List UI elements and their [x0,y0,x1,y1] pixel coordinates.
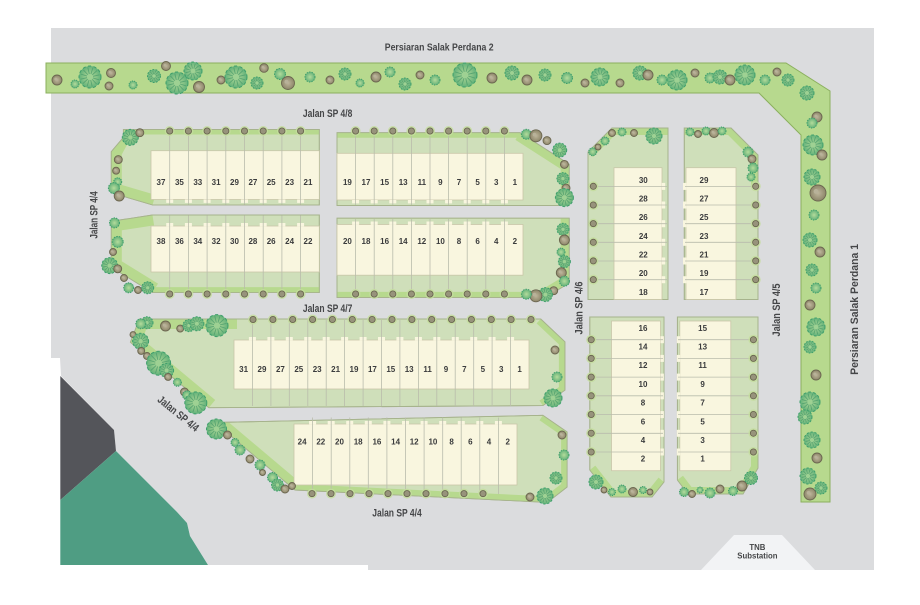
svg-text:18: 18 [354,438,363,447]
svg-text:20: 20 [335,438,344,447]
svg-text:23: 23 [313,365,322,374]
svg-text:22: 22 [304,237,313,246]
svg-text:28: 28 [248,237,257,246]
svg-text:2: 2 [505,438,510,447]
svg-text:26: 26 [639,213,648,222]
svg-text:5: 5 [700,417,705,426]
svg-text:17: 17 [700,288,709,297]
svg-text:18: 18 [639,288,648,297]
svg-text:7: 7 [457,178,462,187]
svg-text:11: 11 [698,361,707,370]
svg-text:32: 32 [212,237,221,246]
svg-text:14: 14 [399,237,408,246]
svg-text:21: 21 [331,365,340,374]
svg-text:11: 11 [423,365,432,374]
svg-text:3: 3 [700,436,705,445]
svg-text:20: 20 [639,269,648,278]
svg-text:24: 24 [285,237,294,246]
svg-text:15: 15 [698,324,707,333]
svg-text:19: 19 [700,269,709,278]
svg-text:5: 5 [475,178,480,187]
svg-text:33: 33 [193,178,202,187]
svg-text:9: 9 [444,365,449,374]
svg-text:2: 2 [513,237,518,246]
svg-text:Substation: Substation [737,552,777,561]
svg-text:4: 4 [494,237,499,246]
svg-text:13: 13 [405,365,414,374]
svg-text:10: 10 [436,237,445,246]
svg-text:Jalan SP 4/8: Jalan SP 4/8 [303,108,352,120]
svg-text:1: 1 [700,455,705,464]
svg-text:18: 18 [362,237,371,246]
svg-text:16: 16 [639,324,648,333]
svg-text:Persiaran Salak Perdana 2: Persiaran Salak Perdana 2 [385,43,494,54]
svg-text:12: 12 [410,438,419,447]
svg-text:38: 38 [157,237,166,246]
svg-text:16: 16 [372,438,381,447]
svg-text:8: 8 [641,399,646,408]
svg-text:27: 27 [276,365,285,374]
svg-text:23: 23 [285,178,294,187]
svg-text:Jalan SP 4/6: Jalan SP 4/6 [574,282,586,335]
svg-text:9: 9 [700,380,705,389]
svg-text:29: 29 [230,178,239,187]
svg-text:25: 25 [700,213,709,222]
svg-text:12: 12 [639,361,648,370]
svg-text:19: 19 [343,178,352,187]
svg-text:27: 27 [248,178,257,187]
svg-text:Persiaran Salak Perdana 1: Persiaran Salak Perdana 1 [849,244,861,375]
svg-text:2: 2 [641,455,646,464]
svg-text:24: 24 [298,438,307,447]
svg-text:4: 4 [487,438,492,447]
svg-text:34: 34 [193,237,202,246]
svg-text:Jalan SP 4/4: Jalan SP 4/4 [89,191,101,239]
svg-text:19: 19 [350,365,359,374]
svg-text:Jalan SP 4/4: Jalan SP 4/4 [372,508,422,520]
svg-text:7: 7 [700,399,705,408]
svg-text:3: 3 [499,365,504,374]
svg-text:11: 11 [418,178,427,187]
svg-text:31: 31 [239,365,248,374]
svg-text:3: 3 [494,178,499,187]
svg-text:31: 31 [212,178,221,187]
svg-text:10: 10 [428,438,437,447]
svg-text:24: 24 [639,232,648,241]
svg-text:17: 17 [368,365,377,374]
svg-text:26: 26 [267,237,276,246]
svg-text:14: 14 [391,438,400,447]
svg-text:25: 25 [267,178,276,187]
svg-text:29: 29 [700,176,709,185]
svg-text:27: 27 [700,195,709,204]
svg-text:8: 8 [457,237,462,246]
svg-text:30: 30 [230,237,239,246]
svg-text:14: 14 [639,343,648,352]
svg-text:15: 15 [386,365,395,374]
svg-text:35: 35 [175,178,184,187]
svg-text:1: 1 [513,178,518,187]
svg-text:16: 16 [380,237,389,246]
svg-text:22: 22 [639,251,648,260]
svg-text:22: 22 [316,438,325,447]
svg-text:25: 25 [294,365,303,374]
svg-text:21: 21 [700,251,709,260]
svg-text:20: 20 [343,237,352,246]
svg-text:7: 7 [462,365,467,374]
svg-text:36: 36 [175,237,184,246]
svg-text:8: 8 [449,438,454,447]
svg-text:15: 15 [380,178,389,187]
svg-text:4: 4 [641,436,646,445]
svg-text:13: 13 [698,343,707,352]
svg-text:17: 17 [362,178,371,187]
svg-text:5: 5 [481,365,486,374]
svg-text:13: 13 [399,178,408,187]
svg-text:1: 1 [517,365,522,374]
svg-text:23: 23 [700,232,709,241]
svg-text:9: 9 [438,178,443,187]
svg-text:Jalan SP 4/5: Jalan SP 4/5 [771,284,783,337]
svg-text:Jalan SP 4/7: Jalan SP 4/7 [303,303,353,315]
svg-text:21: 21 [304,178,313,187]
svg-text:6: 6 [475,237,480,246]
svg-text:30: 30 [639,176,648,185]
svg-text:6: 6 [641,417,646,426]
svg-text:6: 6 [468,438,473,447]
svg-text:37: 37 [157,178,166,187]
svg-text:12: 12 [417,237,426,246]
svg-text:28: 28 [639,195,648,204]
svg-text:29: 29 [258,365,267,374]
svg-text:10: 10 [639,380,648,389]
